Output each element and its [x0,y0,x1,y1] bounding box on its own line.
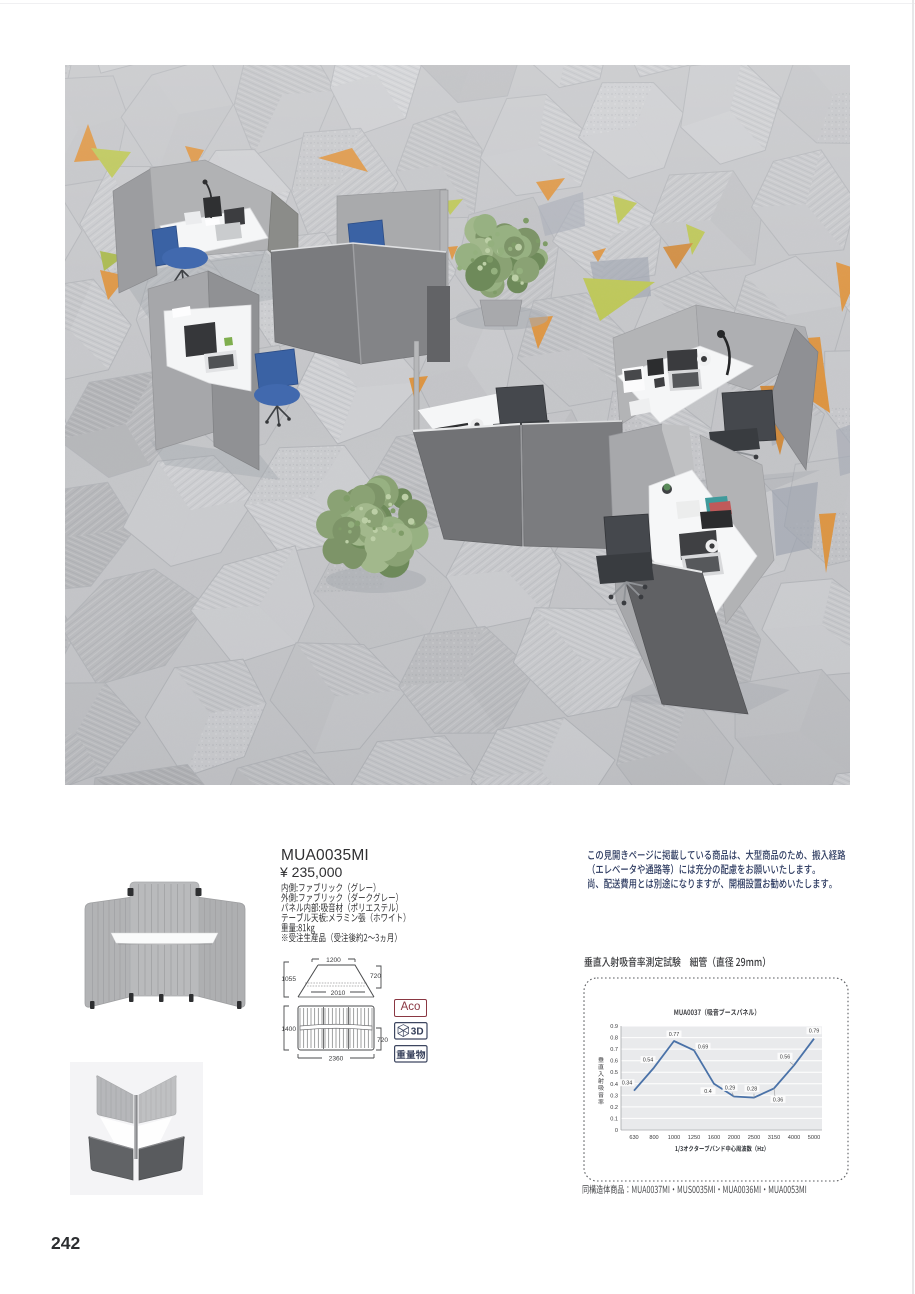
svg-text:0.56: 0.56 [780,1054,791,1060]
svg-text:0.69: 0.69 [698,1044,709,1050]
svg-text:720: 720 [377,1037,388,1044]
svg-text:630: 630 [629,1135,638,1141]
svg-text:1000: 1000 [668,1135,680,1141]
svg-text:0.79: 0.79 [809,1029,820,1035]
svg-text:0.36: 0.36 [773,1097,784,1103]
svg-text:1200: 1200 [326,957,341,964]
svg-text:1600: 1600 [708,1135,720,1141]
svg-text:4000: 4000 [788,1135,800,1141]
svg-text:0.29: 0.29 [725,1085,736,1091]
svg-text:0.34: 0.34 [622,1081,633,1087]
svg-text:2500: 2500 [748,1135,760,1141]
svg-text:0.3: 0.3 [610,1093,618,1099]
svg-text:0.28: 0.28 [747,1087,758,1093]
svg-text:0.2: 0.2 [610,1105,618,1111]
svg-text:0.8: 0.8 [610,1036,618,1042]
svg-text:0.1: 0.1 [610,1116,618,1122]
svg-text:0.4: 0.4 [704,1089,712,1095]
svg-text:3150: 3150 [768,1135,780,1141]
svg-text:0.6: 0.6 [610,1059,618,1065]
svg-text:2010: 2010 [331,990,346,997]
svg-text:720: 720 [370,973,381,980]
svg-text:2360: 2360 [329,1056,344,1063]
svg-text:0.9: 0.9 [610,1024,618,1030]
svg-text:0.4: 0.4 [610,1082,618,1088]
svg-text:1250: 1250 [688,1135,700,1141]
svg-text:2000: 2000 [728,1135,740,1141]
svg-text:0.5: 0.5 [610,1070,618,1076]
svg-text:800: 800 [649,1135,658,1141]
svg-text:3D: 3D [411,1027,424,1038]
svg-text:5000: 5000 [808,1135,820,1141]
svg-text:0.7: 0.7 [610,1047,618,1053]
svg-text:0.77: 0.77 [669,1032,680,1038]
svg-text:0: 0 [615,1128,618,1134]
svg-text:0.54: 0.54 [643,1058,654,1064]
